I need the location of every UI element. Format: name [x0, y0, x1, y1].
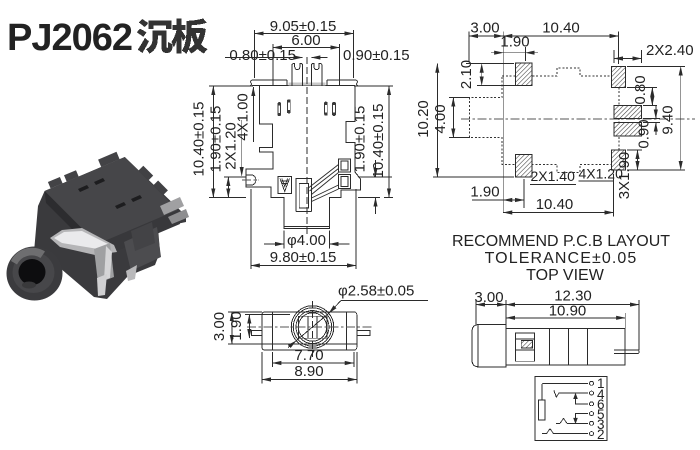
svg-text:2X2.40: 2X2.40 — [646, 42, 694, 59]
svg-text:0.90±0.15: 0.90±0.15 — [343, 47, 410, 64]
svg-text:1.90±0.15: 1.90±0.15 — [352, 106, 369, 173]
svg-text:9.80±0.15: 9.80±0.15 — [270, 249, 337, 266]
svg-text:10.90: 10.90 — [549, 303, 587, 320]
svg-text:9.40: 9.40 — [660, 105, 677, 134]
svg-text:10.20: 10.20 — [415, 100, 432, 138]
svg-text:10.40: 10.40 — [542, 20, 580, 37]
svg-text:10.40±0.15: 10.40±0.15 — [370, 104, 387, 179]
svg-text:2X1.40: 2X1.40 — [531, 168, 576, 184]
svg-text:0.80±0.15: 0.80±0.15 — [229, 47, 296, 64]
svg-text:4X1.20: 4X1.20 — [579, 166, 624, 182]
svg-text:1.90: 1.90 — [228, 311, 245, 340]
svg-text:φ4.00: φ4.00 — [287, 232, 326, 249]
svg-text:3.00: 3.00 — [470, 20, 499, 37]
svg-text:3.00: 3.00 — [474, 289, 503, 306]
svg-text:TOP VIEW: TOP VIEW — [526, 267, 605, 284]
svg-text:0.80: 0.80 — [632, 75, 649, 104]
svg-text:7.70: 7.70 — [294, 347, 323, 364]
svg-text:φ2.58±0.05: φ2.58±0.05 — [338, 283, 414, 300]
svg-text:1.90: 1.90 — [470, 184, 499, 201]
svg-text:TOLERANCE±0.05: TOLERANCE±0.05 — [485, 250, 638, 267]
svg-text:RECOMMEND P.C.B LAYOUT: RECOMMEND P.C.B LAYOUT — [452, 233, 670, 250]
svg-text:10.40±0.15: 10.40±0.15 — [191, 102, 208, 177]
svg-text:0.90: 0.90 — [636, 119, 653, 148]
svg-text:2.10: 2.10 — [458, 60, 475, 89]
svg-text:4X1.00: 4X1.00 — [235, 93, 252, 141]
svg-text:PJ2062: PJ2062 — [7, 17, 132, 59]
svg-text:10.40: 10.40 — [536, 196, 574, 213]
svg-text:4.00: 4.00 — [432, 104, 449, 133]
svg-text:8.90: 8.90 — [294, 363, 323, 380]
svg-text:3.00: 3.00 — [211, 312, 228, 341]
svg-text:2: 2 — [597, 427, 605, 442]
